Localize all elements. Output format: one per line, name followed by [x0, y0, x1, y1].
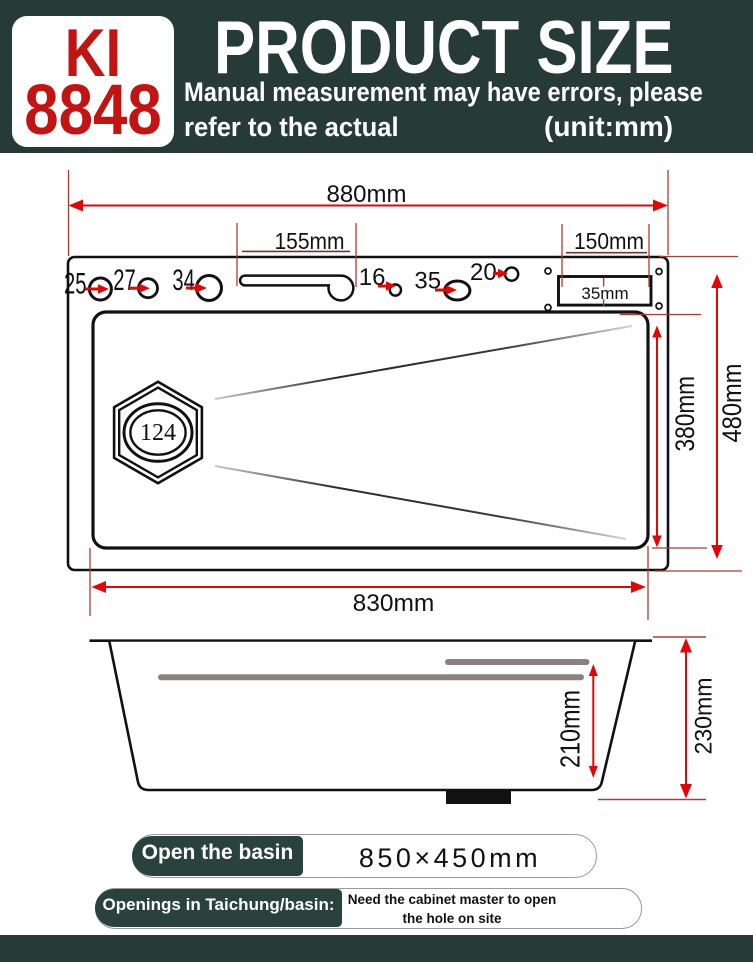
svg-text:155mm: 155mm	[275, 228, 345, 254]
svg-text:35mm: 35mm	[581, 284, 628, 303]
svg-text:380mm: 380mm	[670, 376, 700, 452]
svg-text:150mm: 150mm	[574, 228, 644, 254]
svg-text:480mm: 480mm	[717, 364, 747, 443]
svg-text:124: 124	[140, 420, 176, 446]
svg-text:830mm: 830mm	[353, 590, 435, 617]
svg-text:20: 20	[470, 259, 497, 286]
svg-text:34: 34	[172, 264, 195, 297]
svg-text:880mm: 880mm	[326, 181, 406, 208]
svg-text:25: 25	[64, 268, 87, 301]
svg-text:230mm: 230mm	[691, 678, 718, 755]
svg-text:27: 27	[113, 264, 136, 297]
svg-text:210mm: 210mm	[555, 690, 586, 768]
